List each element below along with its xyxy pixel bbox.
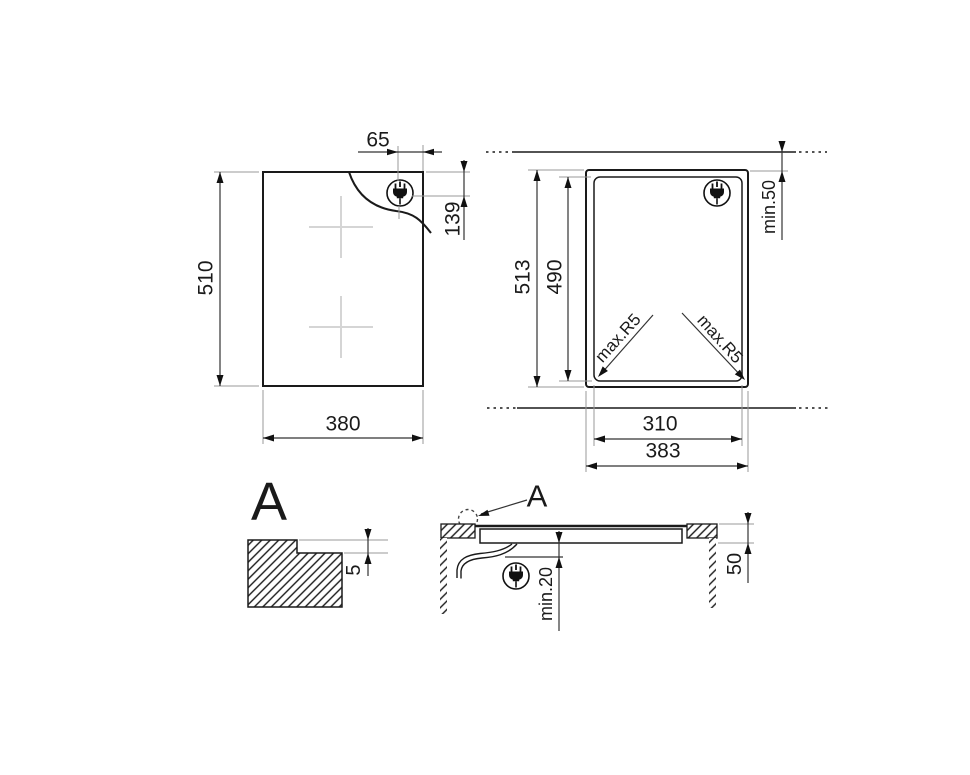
- worktop-left-section: [441, 524, 475, 538]
- technical-drawing-page: 65 139 510 380 min.50 513 490 max.R5 max…: [0, 0, 970, 775]
- hob-body: [480, 529, 682, 543]
- extension-lines: [299, 540, 388, 553]
- technical-drawing-canvas: [0, 0, 970, 775]
- section-view: [440, 500, 754, 631]
- dim-label-min-under-clearance: min.20: [537, 567, 555, 621]
- cabinet-right-wall: [709, 538, 716, 608]
- dim-label-outer-height: 513: [513, 259, 534, 294]
- cabinet-left-wall: [440, 538, 447, 614]
- dim-label-plug-from-right: 65: [366, 130, 389, 151]
- power-plug-icon: [387, 180, 413, 206]
- dim-label-step-height: 5: [344, 564, 364, 575]
- hob-top-view: [214, 145, 470, 444]
- worktop-right-section: [687, 524, 717, 538]
- dim-label-inner-height: 490: [545, 259, 566, 294]
- edge-detail-view: [248, 528, 388, 607]
- dim-label-outer-width: 383: [645, 441, 680, 462]
- dim-label-side-distance: 50: [725, 553, 745, 575]
- power-plug-icon: [503, 563, 529, 589]
- dim-label-inner-width: 310: [642, 414, 677, 435]
- worktop-edge-section: [248, 540, 342, 607]
- dim-label-plug-from-top: 139: [443, 201, 464, 236]
- leader-arrow: [478, 510, 490, 516]
- detail-title-letter: A: [251, 475, 287, 529]
- power-plug-icon: [704, 180, 730, 206]
- dim-label-min-rear-clearance: min.50: [760, 180, 778, 234]
- dim-label-hob-width: 380: [325, 414, 360, 435]
- dim-label-hob-height: 510: [196, 260, 217, 295]
- section-detail-ref-letter: A: [527, 481, 548, 512]
